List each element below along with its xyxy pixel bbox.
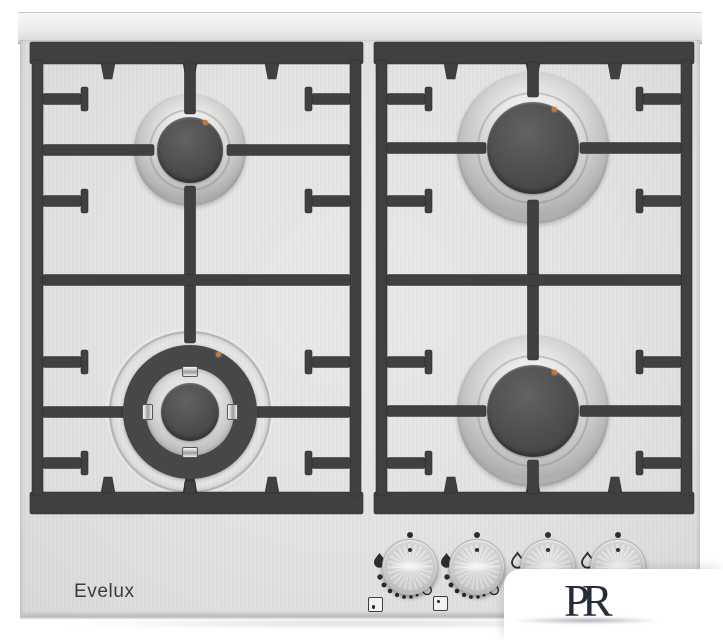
product-photo: Evelux: [0, 0, 723, 640]
burner-position-front-left-icon: [368, 597, 383, 612]
wok-clip-top: [182, 366, 198, 377]
burner-cap-front-left: [161, 383, 219, 441]
igniter-back-right: [552, 107, 557, 112]
position-dot: [372, 605, 376, 609]
burner-position-back-left-icon: [433, 596, 448, 611]
off-position-dot: [545, 532, 551, 538]
knob-front-left[interactable]: [382, 539, 438, 595]
monogram-letter-r: R: [582, 575, 613, 626]
knob-pointer: [546, 548, 550, 552]
wok-clip-left: [142, 404, 153, 420]
igniter-back-left: [203, 120, 208, 125]
brand-logo: Evelux: [74, 581, 135, 603]
watermark-card: P R: [504, 569, 723, 640]
off-position-dot: [474, 532, 480, 538]
burner-cap-back-right: [487, 102, 579, 194]
knob-pointer: [616, 548, 620, 552]
knob-pointer: [408, 548, 412, 552]
watermark-pr-monogram: P R: [544, 574, 664, 626]
burner-cap-back-left: [157, 117, 223, 183]
igniter-front-right: [552, 370, 557, 375]
burner-cap-front-right: [487, 365, 579, 457]
off-position-dot: [615, 532, 621, 538]
wok-clip-bottom: [182, 447, 198, 458]
knob-pointer: [475, 548, 479, 552]
position-dot: [437, 600, 441, 604]
igniter-front-left: [216, 352, 221, 357]
off-position-dot: [407, 532, 413, 538]
wok-clip-right: [227, 404, 238, 420]
knob-back-left[interactable]: [449, 539, 505, 595]
